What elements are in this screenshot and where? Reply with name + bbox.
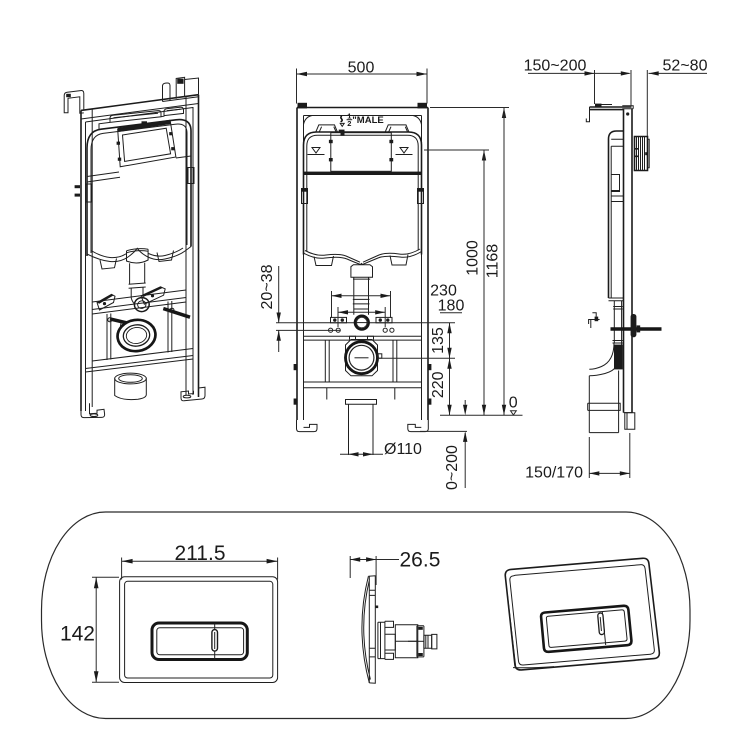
svg-text:150~200: 150~200 [524,58,587,75]
svg-text:1168: 1168 [485,244,502,279]
svg-text:211.5: 211.5 [175,542,226,565]
svg-text:220: 220 [430,371,447,398]
svg-text:135: 135 [430,327,447,354]
svg-text:52~80: 52~80 [663,58,708,75]
svg-text:180: 180 [438,297,465,314]
svg-text:1000: 1000 [465,240,482,276]
svg-text:20~38: 20~38 [259,264,276,309]
svg-text:500: 500 [348,60,375,77]
svg-text:2: 2 [347,119,351,128]
svg-text:150/170: 150/170 [525,465,583,482]
svg-text:26.5: 26.5 [400,549,441,572]
svg-text:0: 0 [509,395,518,412]
svg-text:"MALE: "MALE [352,115,383,126]
svg-text:0~200: 0~200 [444,445,461,490]
svg-text:Ø110: Ø110 [384,441,422,458]
svg-text:142: 142 [60,623,95,646]
